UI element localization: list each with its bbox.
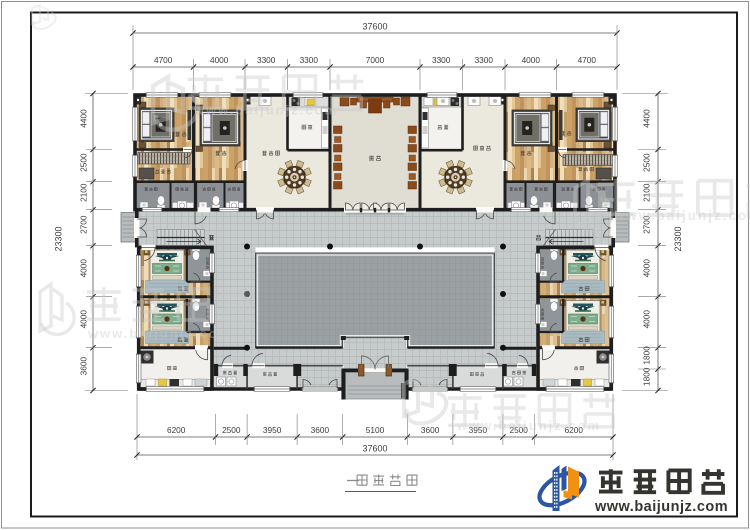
svg-text:37600: 37600 bbox=[362, 22, 387, 32]
svg-text:www.baijunjz.com: www.baijunjz.com bbox=[594, 499, 728, 515]
svg-text:3300: 3300 bbox=[300, 55, 319, 65]
svg-text:4700: 4700 bbox=[154, 55, 173, 65]
svg-text:7000: 7000 bbox=[366, 55, 385, 65]
svg-text:4000: 4000 bbox=[210, 55, 229, 65]
svg-text:23300: 23300 bbox=[673, 226, 683, 251]
svg-text:3600: 3600 bbox=[421, 425, 440, 435]
svg-text:2100: 2100 bbox=[79, 183, 89, 202]
svg-text:3300: 3300 bbox=[432, 55, 451, 65]
svg-text:2100: 2100 bbox=[642, 183, 652, 202]
svg-text:4000: 4000 bbox=[522, 55, 541, 65]
svg-text:3950: 3950 bbox=[263, 425, 282, 435]
svg-text:1800: 1800 bbox=[642, 346, 652, 365]
svg-text:2700: 2700 bbox=[79, 215, 89, 234]
svg-text:2500: 2500 bbox=[222, 425, 241, 435]
svg-text:6200: 6200 bbox=[167, 425, 186, 435]
svg-text:www.baijunjz.com: www.baijunjz.com bbox=[193, 103, 338, 118]
svg-text:4400: 4400 bbox=[79, 109, 89, 128]
svg-text:5100: 5100 bbox=[366, 425, 385, 435]
svg-text:4000: 4000 bbox=[79, 259, 89, 278]
svg-text:4000: 4000 bbox=[642, 310, 652, 329]
svg-text:4700: 4700 bbox=[578, 55, 597, 65]
svg-text:4000: 4000 bbox=[642, 259, 652, 278]
svg-text:3300: 3300 bbox=[475, 55, 494, 65]
svg-text:www.baijunjz.com: www.baijunjz.com bbox=[613, 208, 750, 223]
svg-text:3600: 3600 bbox=[79, 356, 89, 375]
svg-text:3300: 3300 bbox=[257, 55, 276, 65]
svg-text:23300: 23300 bbox=[54, 226, 64, 251]
svg-text:www.baijunjz.com: www.baijunjz.com bbox=[87, 326, 232, 341]
svg-text:37600: 37600 bbox=[362, 444, 387, 454]
svg-text:www.baijunjz.com: www.baijunjz.com bbox=[456, 418, 601, 433]
svg-text:1800: 1800 bbox=[642, 367, 652, 386]
svg-text:2500: 2500 bbox=[642, 153, 652, 172]
svg-text:3600: 3600 bbox=[311, 425, 330, 435]
svg-text:2500: 2500 bbox=[79, 153, 89, 172]
svg-text:4400: 4400 bbox=[642, 109, 652, 128]
